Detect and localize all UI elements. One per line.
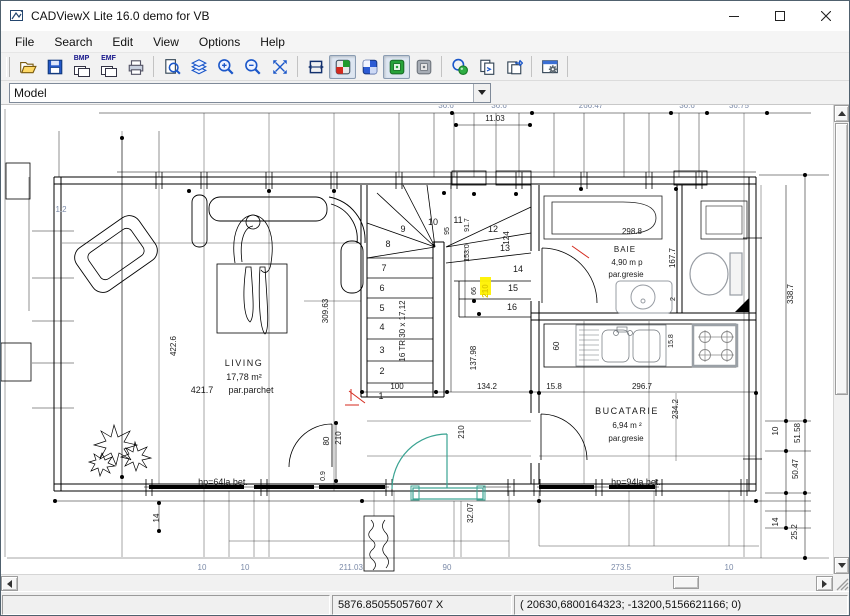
toolbar-separator bbox=[567, 56, 568, 77]
plan-label: 338.7 bbox=[786, 283, 795, 304]
shower-cabin bbox=[701, 201, 747, 239]
view-colors-button[interactable] bbox=[329, 55, 356, 79]
close-icon bbox=[821, 11, 831, 21]
scroll-up-button[interactable] bbox=[834, 105, 849, 122]
menu-file[interactable]: File bbox=[5, 32, 44, 52]
plan-label: 8 bbox=[385, 239, 390, 249]
plan-label: 36.6 bbox=[438, 105, 454, 110]
background-green-button[interactable] bbox=[383, 55, 410, 79]
plan-label: LIVING bbox=[225, 358, 264, 368]
menu-bar: File Search Edit View Options Help bbox=[1, 31, 849, 53]
plant bbox=[89, 425, 151, 476]
copy-view-button[interactable] bbox=[473, 55, 500, 79]
plan-label: 1.2 bbox=[55, 205, 67, 214]
plan-label: 4,90 m p bbox=[611, 258, 643, 267]
plan-label: 0.9 bbox=[320, 471, 327, 481]
plan-label: par.gresie bbox=[608, 434, 644, 443]
scroll-right-button[interactable] bbox=[816, 576, 833, 591]
options-gear-icon bbox=[541, 58, 559, 76]
bathtub bbox=[544, 196, 662, 239]
plan-label: 9 bbox=[400, 224, 405, 234]
gray-square-icon bbox=[415, 58, 433, 76]
person-figure bbox=[234, 215, 272, 334]
resize-grip[interactable] bbox=[833, 574, 849, 591]
options-button[interactable] bbox=[536, 55, 563, 79]
title-bar: CADViewX Lite 16.0 demo for VB bbox=[1, 1, 849, 31]
washbasin bbox=[616, 281, 672, 313]
arrow-up-icon bbox=[838, 111, 846, 116]
export-bmp-icon: BMP bbox=[72, 57, 92, 77]
layout-combo-row: Model bbox=[1, 81, 849, 105]
toilet bbox=[690, 253, 728, 295]
plan-label: 12 bbox=[488, 224, 498, 234]
scroll-left-button[interactable] bbox=[1, 576, 18, 591]
plan-label: 13 bbox=[500, 243, 510, 253]
arrow-left-icon bbox=[7, 580, 12, 588]
plan-label: 91.7 bbox=[464, 218, 471, 232]
layers-icon bbox=[190, 58, 208, 76]
zoom-selection-button[interactable] bbox=[446, 55, 473, 79]
app-window: CADViewX Lite 16.0 demo for VB File Sear… bbox=[0, 0, 850, 616]
plan-label: 36.75 bbox=[729, 105, 750, 110]
menu-edit[interactable]: Edit bbox=[102, 32, 143, 52]
plan-label: 296.7 bbox=[632, 382, 653, 391]
print-button[interactable] bbox=[122, 55, 149, 79]
plan-label: 10 bbox=[241, 563, 250, 572]
print-icon bbox=[127, 58, 145, 76]
minimize-button[interactable] bbox=[711, 1, 757, 31]
layout-combobox[interactable]: Model bbox=[9, 83, 491, 103]
plan-label: 4 bbox=[379, 322, 384, 332]
scroll-down-button[interactable] bbox=[834, 557, 849, 574]
plan-label: 266.47 bbox=[579, 105, 604, 110]
background-gray-button[interactable] bbox=[410, 55, 437, 79]
staircase bbox=[367, 185, 531, 383]
toolbar-separator bbox=[441, 56, 442, 77]
save-floppy-icon bbox=[46, 58, 64, 76]
window-title: CADViewX Lite 16.0 demo for VB bbox=[31, 9, 711, 23]
bathroom-door bbox=[542, 248, 597, 303]
floor-plan[interactable]: LIVING17,78 m²par.parchet421.7BAIE4,90 m… bbox=[1, 105, 833, 574]
plan-label: 66 bbox=[471, 287, 478, 295]
plan-label: 11 bbox=[453, 215, 462, 225]
minimize-icon bbox=[729, 11, 739, 21]
plan-label: BUCATARIE bbox=[595, 406, 659, 416]
quad-red-green-icon bbox=[334, 58, 352, 76]
plan-label: 15.8 bbox=[546, 382, 562, 391]
sofa-back bbox=[209, 197, 327, 221]
plan-label: 210 bbox=[481, 284, 490, 298]
margin-lines bbox=[29, 113, 699, 408]
layers-button[interactable] bbox=[185, 55, 212, 79]
windows bbox=[1, 163, 707, 489]
corner-triangle bbox=[735, 298, 749, 312]
armchair bbox=[70, 211, 162, 297]
menu-search[interactable]: Search bbox=[44, 32, 102, 52]
plan-label: 3 bbox=[379, 345, 384, 355]
view-mono-button[interactable] bbox=[356, 55, 383, 79]
open-folder-icon bbox=[19, 58, 37, 76]
selected-entrance-door[interactable] bbox=[392, 434, 485, 500]
plan-label: 17,78 m² bbox=[226, 372, 262, 382]
zoom-extents-icon bbox=[271, 58, 289, 76]
menu-options[interactable]: Options bbox=[189, 32, 250, 52]
zoom-in-icon bbox=[217, 58, 235, 76]
arrow-down-icon bbox=[838, 563, 846, 568]
fixtures bbox=[544, 196, 749, 367]
quad-blue-icon bbox=[361, 58, 379, 76]
export-emf-button[interactable]: EMF bbox=[95, 55, 122, 79]
zoom-out-button[interactable] bbox=[239, 55, 266, 79]
print-preview-button[interactable] bbox=[158, 55, 185, 79]
plan-label: 80 bbox=[322, 436, 331, 445]
maximize-icon bbox=[775, 11, 785, 21]
plan-label: 16 TR.30 x 17,12 bbox=[398, 300, 407, 362]
plan-label: 273.5 bbox=[611, 563, 632, 572]
app-icon bbox=[9, 8, 25, 24]
plan-labels: LIVING17,78 m²par.parchet421.7BAIE4,90 m… bbox=[55, 105, 802, 572]
toolbar-grip[interactable] bbox=[6, 57, 10, 77]
menu-view[interactable]: View bbox=[143, 32, 189, 52]
plan-label: 95 bbox=[444, 227, 451, 235]
furniture bbox=[70, 195, 394, 571]
fit-window-icon bbox=[307, 58, 325, 76]
horizontal-scrollbar[interactable] bbox=[1, 574, 833, 591]
kitchen-door bbox=[541, 414, 587, 460]
plan-label: 36.6 bbox=[491, 105, 507, 110]
sofa-armrest bbox=[192, 195, 207, 247]
toolbar: BMP EMF bbox=[1, 53, 849, 81]
green-square-icon bbox=[388, 58, 406, 76]
close-button[interactable] bbox=[803, 1, 849, 31]
plan-label: 298.8 bbox=[622, 227, 643, 236]
zoom-out-icon bbox=[244, 58, 262, 76]
vertical-scrollbar[interactable] bbox=[833, 105, 849, 574]
plan-label: 134.2 bbox=[477, 382, 498, 391]
plan-label: 60 bbox=[552, 341, 561, 350]
plan-label: 16 bbox=[507, 302, 517, 312]
plan-label: hp=64la bet. bbox=[198, 477, 248, 487]
status-coordinates: ( 20630,6800164323; -13200,5156621166; 0… bbox=[514, 595, 848, 615]
table bbox=[217, 264, 287, 333]
plan-label: 211.03 bbox=[339, 563, 363, 572]
toolbar-separator bbox=[297, 56, 298, 77]
vertical-scroll-thumb[interactable] bbox=[835, 123, 848, 395]
plan-label: 15 bbox=[508, 283, 518, 293]
plan-label: 10 bbox=[771, 426, 780, 435]
status-bar: 5876.85055057607 X ( 20630,6800164323; -… bbox=[1, 591, 849, 616]
plan-label: 14 bbox=[152, 513, 161, 522]
plan-label: 90 bbox=[443, 563, 452, 572]
plan-label: 137.98 bbox=[469, 345, 478, 370]
horizontal-scroll-thumb[interactable] bbox=[673, 576, 699, 589]
plan-label: 32.07 bbox=[466, 502, 475, 523]
drawing-canvas[interactable]: LIVING17,78 m²par.parchet421.7BAIE4,90 m… bbox=[1, 105, 833, 574]
plan-label: 6 bbox=[379, 283, 384, 293]
plan-label: 210 bbox=[457, 425, 466, 439]
plan-label: 7 bbox=[381, 263, 386, 273]
open-button[interactable] bbox=[14, 55, 41, 79]
zoom-in-button[interactable] bbox=[212, 55, 239, 79]
kitchen-sink bbox=[576, 325, 666, 366]
plan-label: 11.03 bbox=[485, 114, 505, 123]
sofa-corner bbox=[329, 197, 365, 243]
planter-box bbox=[364, 516, 394, 571]
stove bbox=[693, 325, 737, 366]
kitchen-counter bbox=[544, 324, 736, 367]
plan-label: 167.7 bbox=[668, 247, 677, 268]
copy-pages-icon bbox=[478, 58, 496, 76]
combobox-dropdown-button[interactable] bbox=[473, 84, 490, 102]
plan-label: par.gresie bbox=[608, 270, 644, 279]
plan-label: 2 bbox=[379, 366, 384, 376]
plan-label: 50.47 bbox=[791, 458, 800, 479]
resize-grip-icon bbox=[833, 574, 849, 591]
plan-label: hp=94la bet. bbox=[611, 477, 661, 487]
status-cursor-x: 5876.85055057607 X bbox=[332, 595, 512, 615]
save-button[interactable] bbox=[41, 55, 68, 79]
plan-label: 309.63 bbox=[321, 298, 330, 323]
plan-label: 10 bbox=[725, 563, 734, 572]
plan-label: 14 bbox=[771, 517, 780, 526]
plan-label: BAIE bbox=[614, 245, 636, 254]
magnifier-orb-icon bbox=[451, 58, 469, 76]
layout-combobox-value: Model bbox=[10, 86, 473, 100]
toolbar-separator bbox=[531, 56, 532, 77]
plan-label: 234.2 bbox=[671, 398, 680, 419]
plan-label: 10 bbox=[198, 563, 207, 572]
chevron-down-icon bbox=[478, 90, 486, 95]
plan-label: 51.58 bbox=[793, 422, 802, 443]
plan-label: 36.6 bbox=[679, 105, 695, 110]
paste-pages-icon bbox=[505, 58, 523, 76]
plan-label: 1 bbox=[378, 391, 383, 401]
plan-label: 153.0 bbox=[464, 244, 471, 262]
plan-label: 25.2 bbox=[790, 524, 799, 540]
menu-help[interactable]: Help bbox=[250, 32, 295, 52]
plan-label: 6,94 m ² bbox=[612, 421, 642, 430]
plan-label: par.parchet bbox=[228, 385, 274, 395]
arrow-right-icon bbox=[822, 580, 827, 588]
plan-label: 5 bbox=[379, 303, 384, 313]
maximize-button[interactable] bbox=[757, 1, 803, 31]
paste-view-button[interactable] bbox=[500, 55, 527, 79]
fit-window-button[interactable] bbox=[302, 55, 329, 79]
plan-label: 100 bbox=[390, 382, 404, 391]
plan-label: 422.6 bbox=[169, 335, 178, 356]
plan-label: 421.7 bbox=[191, 385, 214, 395]
zoom-extents-button[interactable] bbox=[266, 55, 293, 79]
preview-icon bbox=[163, 58, 181, 76]
export-bmp-button[interactable]: BMP bbox=[68, 55, 95, 79]
client-area: LIVING17,78 m²par.parchet421.7BAIE4,90 m… bbox=[1, 105, 849, 591]
plan-label: 10 bbox=[428, 217, 438, 227]
plan-label: 14 bbox=[513, 264, 523, 274]
status-panel-left bbox=[2, 595, 330, 615]
plan-label: 15.8 bbox=[668, 334, 675, 348]
plan-label: 2 bbox=[670, 297, 677, 301]
toolbar-separator bbox=[153, 56, 154, 77]
sofa-side bbox=[341, 241, 363, 293]
export-emf-icon: EMF bbox=[99, 57, 119, 77]
plan-label: 210 bbox=[334, 431, 343, 445]
